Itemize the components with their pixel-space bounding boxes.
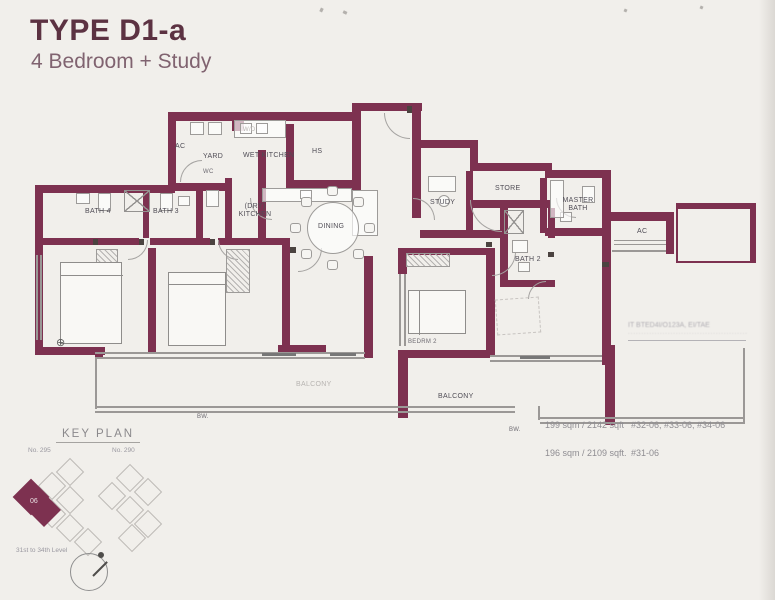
room-label-bedrm2: BEDRM 2	[408, 339, 437, 345]
wall	[286, 180, 361, 188]
wall	[605, 345, 615, 425]
wall	[35, 185, 175, 193]
window-line	[40, 255, 42, 340]
dry-kitchen-line1: (DRY)	[245, 203, 266, 210]
ac-vent	[614, 240, 666, 241]
master-bath-line2: BATH	[568, 205, 587, 212]
door-jamb	[602, 262, 609, 267]
room-label-store: STORE	[495, 185, 521, 192]
window-line	[404, 274, 406, 346]
sliding-door	[520, 356, 550, 359]
wall	[470, 163, 552, 171]
wall	[43, 238, 139, 245]
faint-sketch	[495, 297, 541, 336]
master-bath-line1: MASTER	[563, 197, 594, 204]
wall	[666, 212, 674, 254]
sink	[256, 123, 268, 134]
wardrobe	[226, 249, 250, 293]
window-line	[95, 352, 365, 354]
door-arc	[128, 240, 148, 260]
room-label-study: STUDY	[430, 199, 455, 206]
window-line	[399, 274, 401, 346]
balcony-parapet	[743, 348, 745, 422]
wall	[148, 248, 156, 352]
wall	[364, 256, 373, 358]
area-size-2: 196 sqm / 2109 sqft.	[545, 448, 627, 458]
stamp-text: IT BTED4I/O123A, EI/TAE	[628, 322, 710, 329]
wall	[398, 350, 490, 358]
window-line	[490, 360, 602, 362]
scan-speck	[343, 10, 348, 14]
balcony-parapet	[540, 417, 745, 419]
wall	[282, 245, 290, 352]
toilet	[512, 240, 528, 253]
room-label-dry-kitchen: (DRY) KITCHEN	[230, 203, 280, 219]
area-units-2: #31-06	[631, 448, 659, 458]
wall	[168, 112, 176, 191]
door-jamb	[407, 106, 412, 113]
stamp-text: ········································…	[628, 331, 748, 337]
window-line	[36, 255, 38, 340]
floor-plan-page: TYPE D1-a 4 Bedroom + Study	[0, 0, 775, 600]
door-jamb	[290, 247, 296, 253]
balcony-parapet	[95, 357, 97, 409]
room-label-bath3: BATH 3	[153, 208, 179, 215]
key-plan-block-left: No. 295	[28, 447, 51, 454]
appliance	[208, 122, 222, 135]
window-line	[95, 357, 365, 359]
wall	[676, 203, 756, 263]
door-jamb	[548, 252, 554, 257]
scan-speck	[319, 8, 323, 13]
wall	[398, 356, 408, 418]
basin	[178, 196, 190, 206]
chair	[353, 197, 364, 207]
chair	[353, 249, 364, 259]
bed	[60, 262, 122, 344]
balcony-parapet	[95, 411, 515, 413]
chair	[290, 223, 301, 233]
room-label-ac-left: AC	[175, 143, 185, 150]
room-label-dining: DINING	[318, 223, 344, 230]
door-jamb	[210, 239, 215, 245]
shower	[504, 210, 524, 234]
door-arc	[180, 160, 202, 182]
wall	[545, 170, 610, 178]
appliance-label-wd: W/D	[243, 127, 256, 133]
wardrobe	[406, 253, 450, 267]
desk	[428, 176, 456, 192]
room-label-balcony-left: BALCONY	[296, 381, 332, 388]
wall	[150, 238, 210, 245]
area-size-1: 199 sqm / 2142 sqft	[545, 420, 624, 430]
room-label-bath2: BATH 2	[515, 256, 541, 263]
ac-vent	[614, 244, 666, 245]
key-plan-unit-label: 06	[30, 498, 38, 505]
room-label-balcony: BALCONY	[438, 393, 474, 400]
appliance	[190, 122, 204, 135]
key-plan-levels: 31st to 34th Level	[16, 547, 67, 554]
bed	[408, 290, 466, 334]
door-jamb	[93, 239, 98, 245]
chair	[327, 186, 338, 196]
area-units-1: #32-06, #33-06, #34-06	[631, 420, 725, 430]
basin	[76, 193, 90, 204]
scan-speck	[700, 6, 704, 10]
room-label-wet-kitchen: WET KITCHEN	[243, 152, 294, 159]
chair	[301, 197, 312, 207]
door-jamb	[486, 242, 492, 247]
balcony-parapet	[95, 406, 515, 408]
wall	[196, 185, 203, 238]
stamp-underline	[628, 340, 746, 341]
chair	[301, 249, 312, 259]
room-label-bath4: BATH 4	[85, 208, 111, 215]
sliding-door	[262, 353, 296, 356]
room-label-yard: YARD	[203, 153, 223, 160]
dry-kitchen-line2: KITCHEN	[239, 211, 272, 218]
page-subtitle: 4 Bedroom + Study	[31, 50, 211, 74]
window-line	[612, 250, 666, 252]
toilet	[206, 190, 219, 207]
wall	[352, 103, 361, 190]
door-arc	[470, 200, 502, 232]
shower	[124, 190, 150, 212]
page-title: TYPE D1-a	[30, 14, 186, 48]
bed	[168, 272, 226, 346]
room-label-hs: HS	[312, 148, 322, 155]
window-symbol: ⊕	[56, 336, 66, 349]
bw-mark: BW.	[509, 427, 521, 433]
chair	[364, 223, 375, 233]
sliding-door	[330, 353, 356, 356]
basin	[518, 262, 530, 272]
key-plan-block-right: No. 290	[112, 447, 135, 454]
room-label-master-bath: MASTER BATH	[556, 197, 600, 213]
door-arc	[492, 252, 516, 276]
room-label-ac-right: AC	[637, 228, 647, 235]
bw-mark: BW.	[197, 414, 209, 420]
wall	[500, 280, 555, 287]
room-label-wc: WC	[203, 169, 214, 175]
scan-speck	[624, 9, 628, 13]
chair	[327, 260, 338, 270]
door-arc	[384, 113, 410, 139]
wall	[610, 212, 674, 221]
key-plan-title: KEY PLAN	[56, 428, 140, 443]
